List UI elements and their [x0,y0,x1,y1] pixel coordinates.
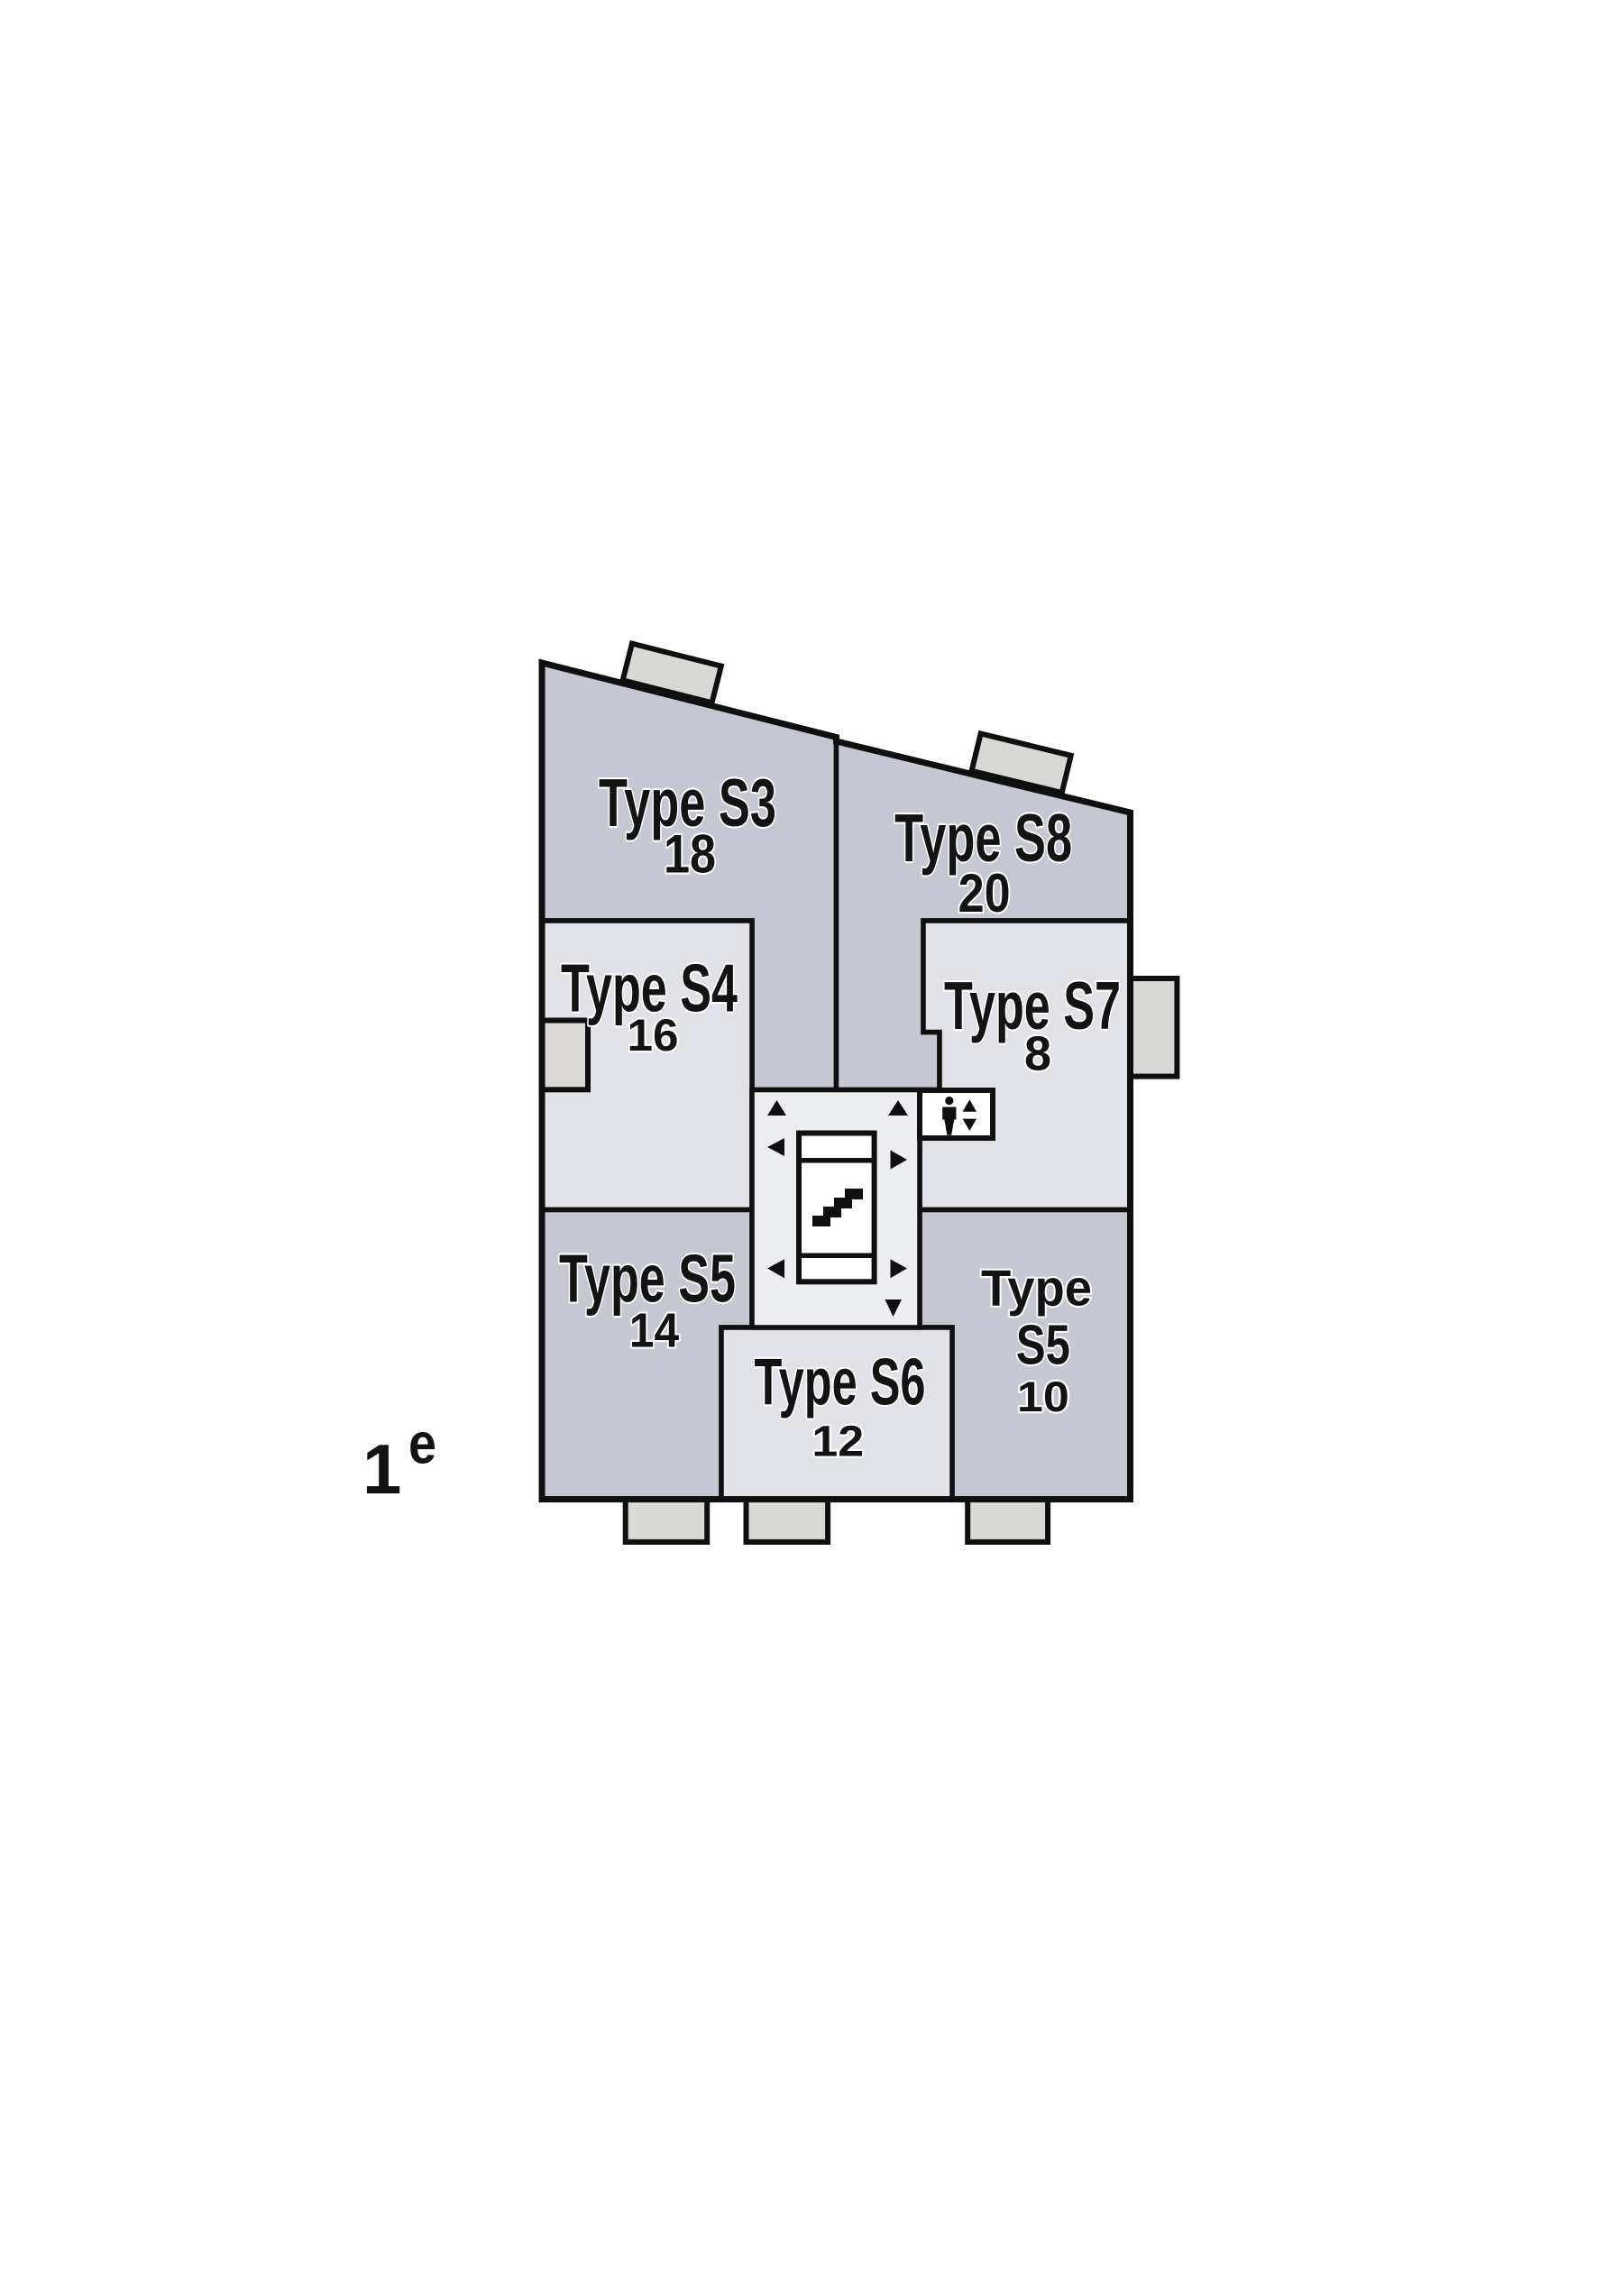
svg-text:Type: Type [981,1260,1092,1318]
svg-text:12: 12 [811,1419,864,1466]
svg-text:16: 16 [628,1010,679,1061]
svg-text:14: 14 [629,1304,679,1358]
svg-text:Type S6: Type S6 [755,1346,926,1419]
svg-text:1: 1 [362,1429,401,1509]
svg-text:8: 8 [1024,1027,1051,1081]
svg-text:10: 10 [1017,1373,1069,1420]
svg-text:e: e [408,1411,436,1476]
svg-text:S5: S5 [1016,1315,1070,1377]
svg-text:18: 18 [664,824,716,885]
svg-text:20: 20 [958,863,1011,923]
